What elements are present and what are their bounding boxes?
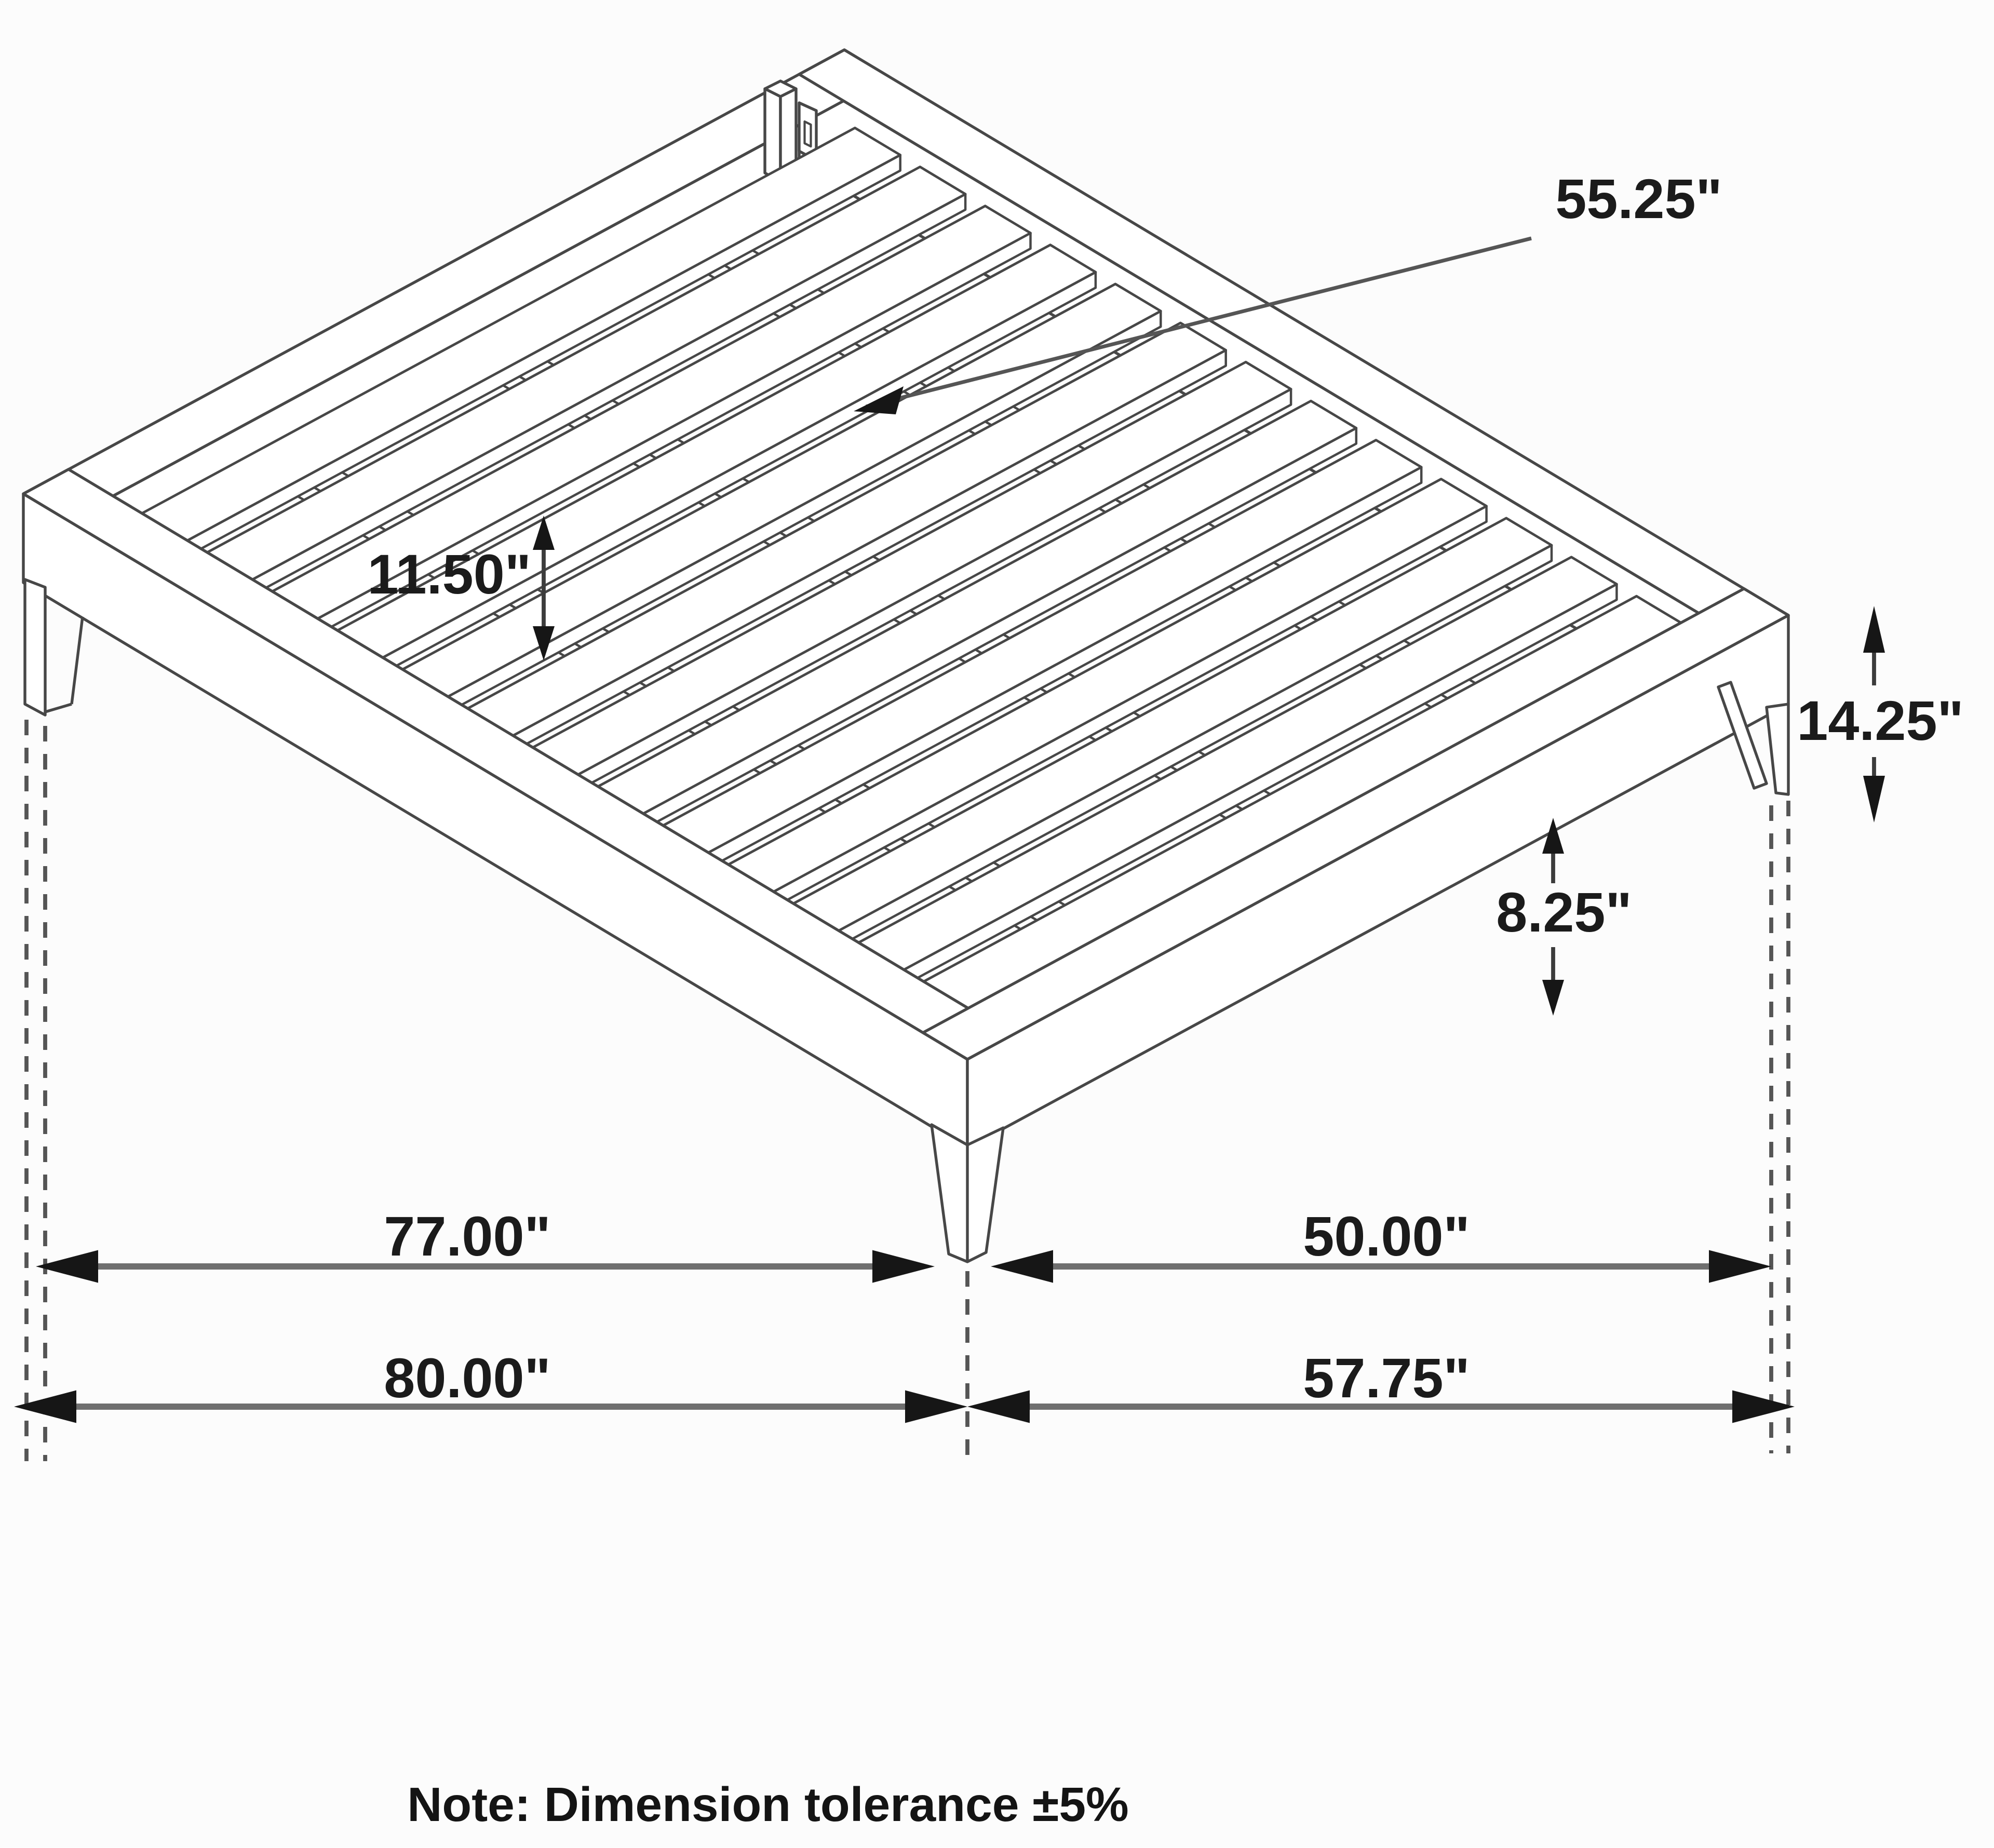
diagram-page: 55.25" 11.50" 14.25" 8.25" 77.00" 50.00"… bbox=[0, 0, 1994, 1847]
bracket-slot bbox=[805, 122, 811, 146]
dim-label-slat-spacing: 11.50" bbox=[367, 543, 531, 605]
dim-label-overall-width: 57.75" bbox=[1303, 1346, 1470, 1409]
dim-label-under-clearance: 8.25" bbox=[1496, 881, 1632, 943]
arrowhead-5775-right bbox=[1732, 1391, 1795, 1423]
arrowhead-77-left bbox=[36, 1250, 98, 1283]
arrowhead-80-right bbox=[905, 1391, 967, 1423]
arrowhead-50-left bbox=[991, 1250, 1053, 1283]
arrowhead-1425-down bbox=[1863, 776, 1885, 822]
arrowhead-50-right bbox=[1709, 1250, 1771, 1283]
arrowhead-1425-up bbox=[1863, 606, 1885, 653]
dim-label-inner-width: 50.00" bbox=[1303, 1205, 1470, 1267]
tolerance-note: Note: Dimension tolerance ±5% bbox=[407, 1777, 1129, 1831]
left-leg bbox=[25, 579, 45, 715]
bed-frame-diagram: 55.25" 11.50" 14.25" 8.25" 77.00" 50.00"… bbox=[0, 0, 1994, 1847]
dim-label-slat-length: 55.25" bbox=[1555, 167, 1722, 230]
arrowhead-5775-left bbox=[967, 1391, 1030, 1423]
dim-label-overall-height: 14.25" bbox=[1797, 689, 1963, 752]
left-leg-brace-edge bbox=[72, 617, 83, 704]
left-leg-brace-bottom bbox=[45, 704, 72, 712]
bed-frame-drawing bbox=[23, 50, 1788, 1262]
arrowhead-825-down bbox=[1542, 980, 1564, 1016]
right-leg bbox=[1767, 704, 1788, 794]
arrowhead-77-right bbox=[872, 1250, 935, 1283]
dim-label-inner-length: 77.00" bbox=[384, 1205, 550, 1267]
arrowhead-80-left bbox=[14, 1391, 76, 1423]
dim-label-overall-length: 80.00" bbox=[384, 1346, 550, 1409]
